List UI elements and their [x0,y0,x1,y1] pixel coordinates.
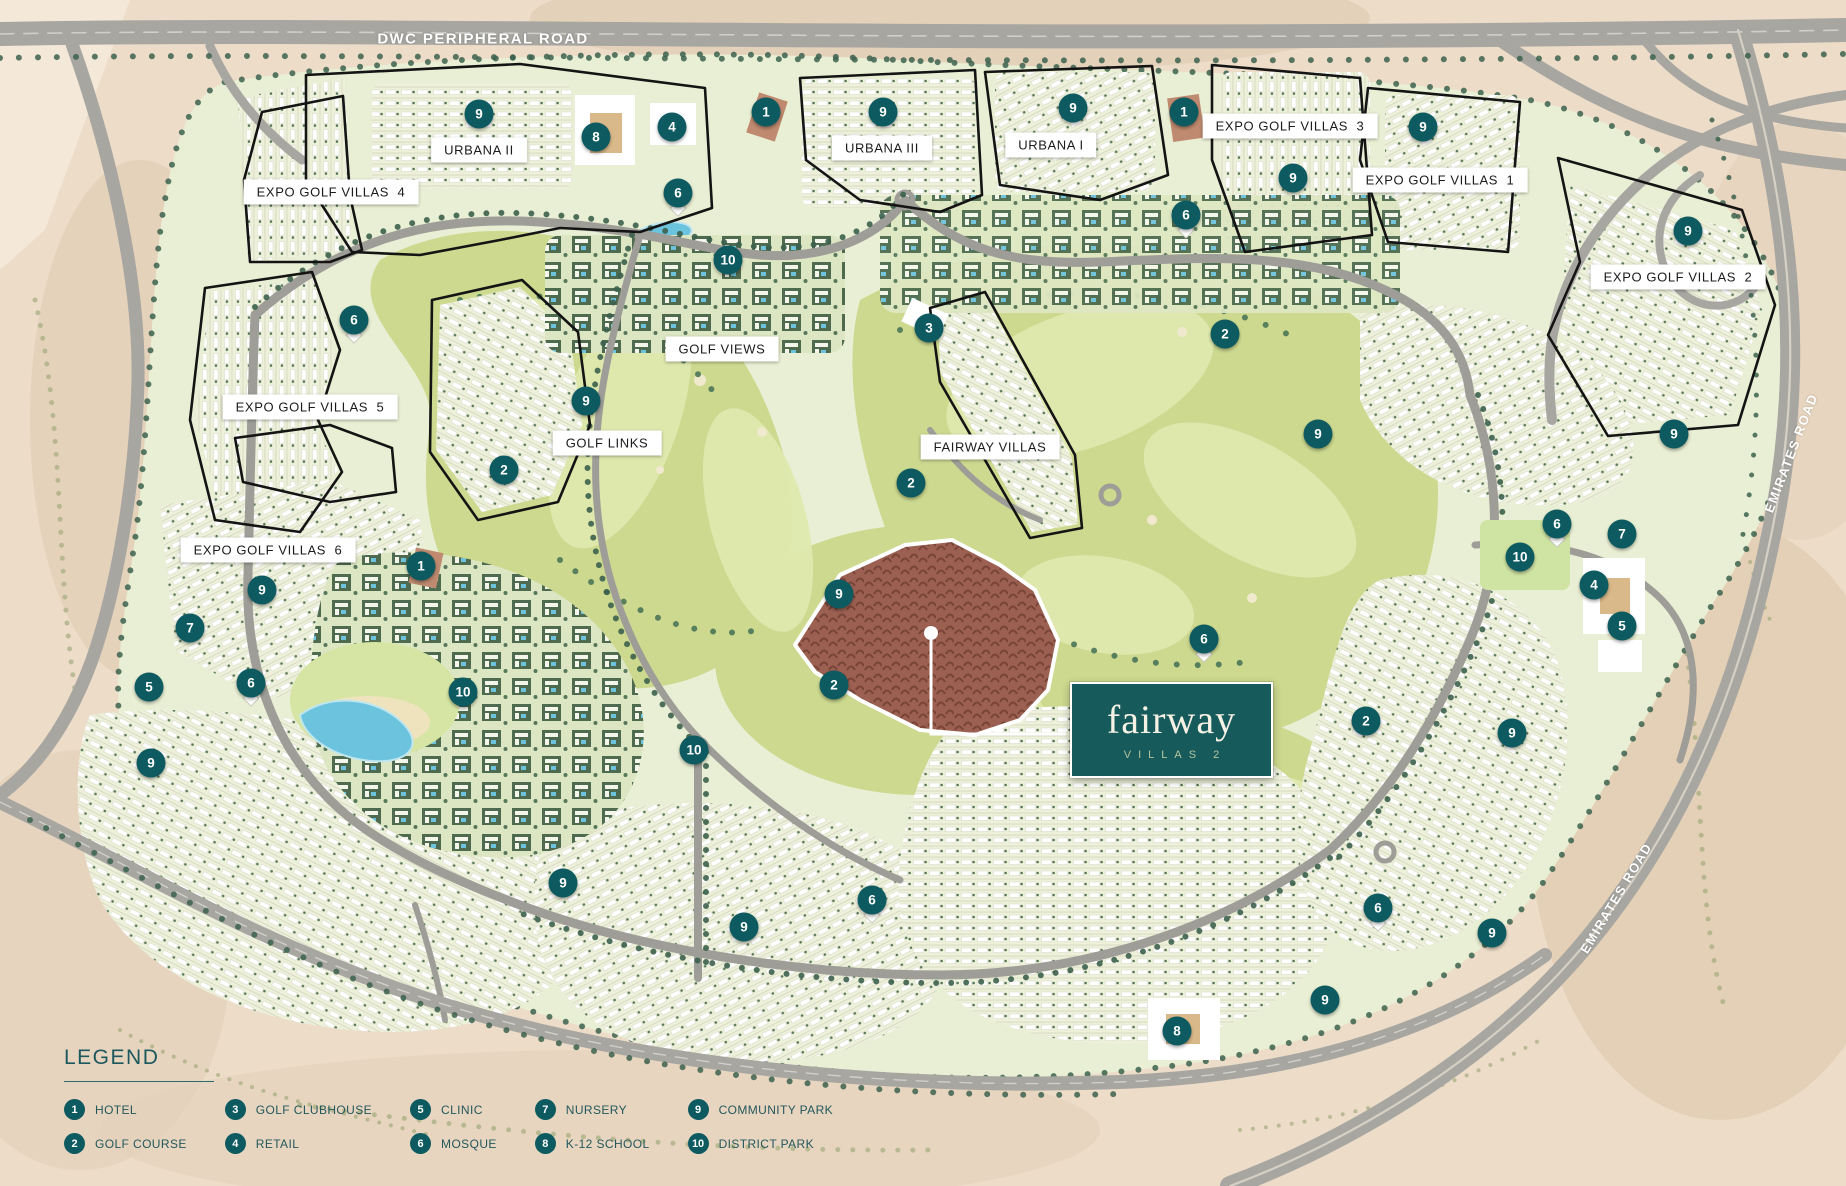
map-marker-6: 6 [1172,201,1201,230]
legend-item-clinic: 5CLINIC [410,1099,497,1120]
legend-divider [64,1081,214,1082]
map-marker-9: 9 [1059,94,1088,123]
legend-number-badge: 1 [64,1099,85,1120]
map-marker-5: 5 [135,673,164,702]
area-label-expo-golf-villas-4: EXPO GOLF VILLAS 4 [244,180,419,205]
map-marker-6: 6 [858,886,887,915]
legend-item-label: RETAIL [256,1137,300,1151]
area-label-expo-golf-villas-1: EXPO GOLF VILLAS 1 [1353,168,1528,193]
map-marker-3: 3 [915,314,944,343]
project-logo: fairway VILLAS 2 [1070,682,1273,778]
map-marker-6: 6 [237,669,266,698]
map-marker-9: 9 [549,869,578,898]
map-marker-10: 10 [680,736,709,765]
map-marker-10: 10 [449,678,478,707]
area-label-expo-golf-villas-6: EXPO GOLF VILLAS 6 [181,538,356,563]
legend-item-label: HOTEL [95,1103,137,1117]
map-marker-10: 10 [714,246,743,275]
legend-item-label: K-12 SCHOOL [566,1137,650,1151]
map-marker-6: 6 [340,306,369,335]
area-label-golf-views: GOLF VIEWS [666,337,779,362]
area-label-urbana-i: URBANA I [1005,133,1096,158]
map-marker-1: 1 [407,552,436,581]
legend-item-label: GOLF COURSE [95,1137,187,1151]
map-marker-9: 9 [1409,113,1438,142]
map-marker-2: 2 [1211,320,1240,349]
map-marker-4: 4 [1580,571,1609,600]
legend-item-label: NURSERY [566,1103,627,1117]
area-label-golf-links: GOLF LINKS [553,431,662,456]
map-marker-9: 9 [248,576,277,605]
map-marker-2: 2 [1352,707,1381,736]
legend-item-nursery: 7NURSERY [535,1099,650,1120]
map-marker-9: 9 [137,749,166,778]
legend-number-badge: 2 [64,1133,85,1154]
area-label-fairway-villas: FAIRWAY VILLAS [921,435,1060,460]
legend-item-mosque: 6MOSQUE [410,1133,497,1154]
legend-item-golf-course: 2GOLF COURSE [64,1133,187,1154]
legend-item-label: GOLF CLUBHOUSE [256,1103,372,1117]
map-marker-1: 1 [1170,98,1199,127]
area-label-expo-golf-villas-3: EXPO GOLF VILLAS 3 [1203,114,1378,139]
map-marker-9: 9 [869,98,898,127]
project-logo-subtitle: VILLAS 2 [1117,749,1226,761]
map-marker-2: 2 [820,671,849,700]
map-marker-9: 9 [1279,164,1308,193]
legend-number-badge: 4 [225,1133,246,1154]
legend-number-badge: 8 [535,1133,556,1154]
map-marker-1: 1 [752,98,781,127]
legend-item-label: CLINIC [441,1103,483,1117]
map-marker-5: 5 [1608,612,1637,641]
road-label-dwc-peripheral: DWC PERIPHERAL ROAD [377,31,588,48]
legend-number-badge: 9 [688,1099,709,1120]
map-marker-6: 6 [1543,510,1572,539]
map-marker-9: 9 [465,100,494,129]
project-logo-name: fairway [1107,700,1236,740]
area-label-expo-golf-villas-5: EXPO GOLF VILLAS 5 [223,395,398,420]
map-marker-7: 7 [176,614,205,643]
area-label-urbana-ii: URBANA II [431,138,527,163]
masterplan-map: DWC PERIPHERAL ROAD EMIRATES ROAD EMIRAT… [0,0,1846,1186]
map-marker-9: 9 [1311,986,1340,1015]
legend-number-badge: 10 [688,1133,709,1154]
map-marker-9: 9 [1478,919,1507,948]
map-marker-10: 10 [1506,543,1535,572]
map-marker-9: 9 [730,913,759,942]
legend-items: 1HOTEL2GOLF COURSE3GOLF CLUBHOUSE4RETAIL… [64,1099,833,1154]
map-marker-9: 9 [825,580,854,609]
map-marker-2: 2 [490,456,519,485]
legend-item-community-park: 9COMMUNITY PARK [688,1099,834,1120]
map-marker-4: 4 [658,113,687,142]
map-marker-8: 8 [582,123,611,152]
legend-title: LEGEND [64,1046,833,1070]
legend-item-label: MOSQUE [441,1137,497,1151]
legend-item-retail: 4RETAIL [225,1133,372,1154]
map-marker-6: 6 [1364,894,1393,923]
map-marker-8: 8 [1163,1017,1192,1046]
legend-item-golf-clubhouse: 3GOLF CLUBHOUSE [225,1099,372,1120]
map-marker-9: 9 [1304,420,1333,449]
base-map-illustration [0,0,1846,1186]
map-marker-2: 2 [897,469,926,498]
map-marker-9: 9 [1498,719,1527,748]
legend: LEGEND 1HOTEL2GOLF COURSE3GOLF CLUBHOUSE… [64,1046,833,1154]
map-marker-7: 7 [1608,520,1637,549]
area-label-expo-golf-villas-2: EXPO GOLF VILLAS 2 [1591,265,1766,290]
legend-number-badge: 7 [535,1099,556,1120]
map-marker-6: 6 [1190,625,1219,654]
legend-item-hotel: 1HOTEL [64,1099,187,1120]
legend-item-label: COMMUNITY PARK [719,1103,834,1117]
legend-number-badge: 6 [410,1133,431,1154]
map-marker-9: 9 [1674,217,1703,246]
area-label-urbana-iii: URBANA III [832,136,932,161]
map-marker-9: 9 [572,387,601,416]
legend-item-label: DISTRICT PARK [719,1137,814,1151]
legend-item-district-park: 10DISTRICT PARK [688,1133,834,1154]
map-marker-9: 9 [1660,420,1689,449]
legend-number-badge: 3 [225,1099,246,1120]
map-marker-6: 6 [664,179,693,208]
legend-number-badge: 5 [410,1099,431,1120]
legend-item-k-12-school: 8K-12 SCHOOL [535,1133,650,1154]
